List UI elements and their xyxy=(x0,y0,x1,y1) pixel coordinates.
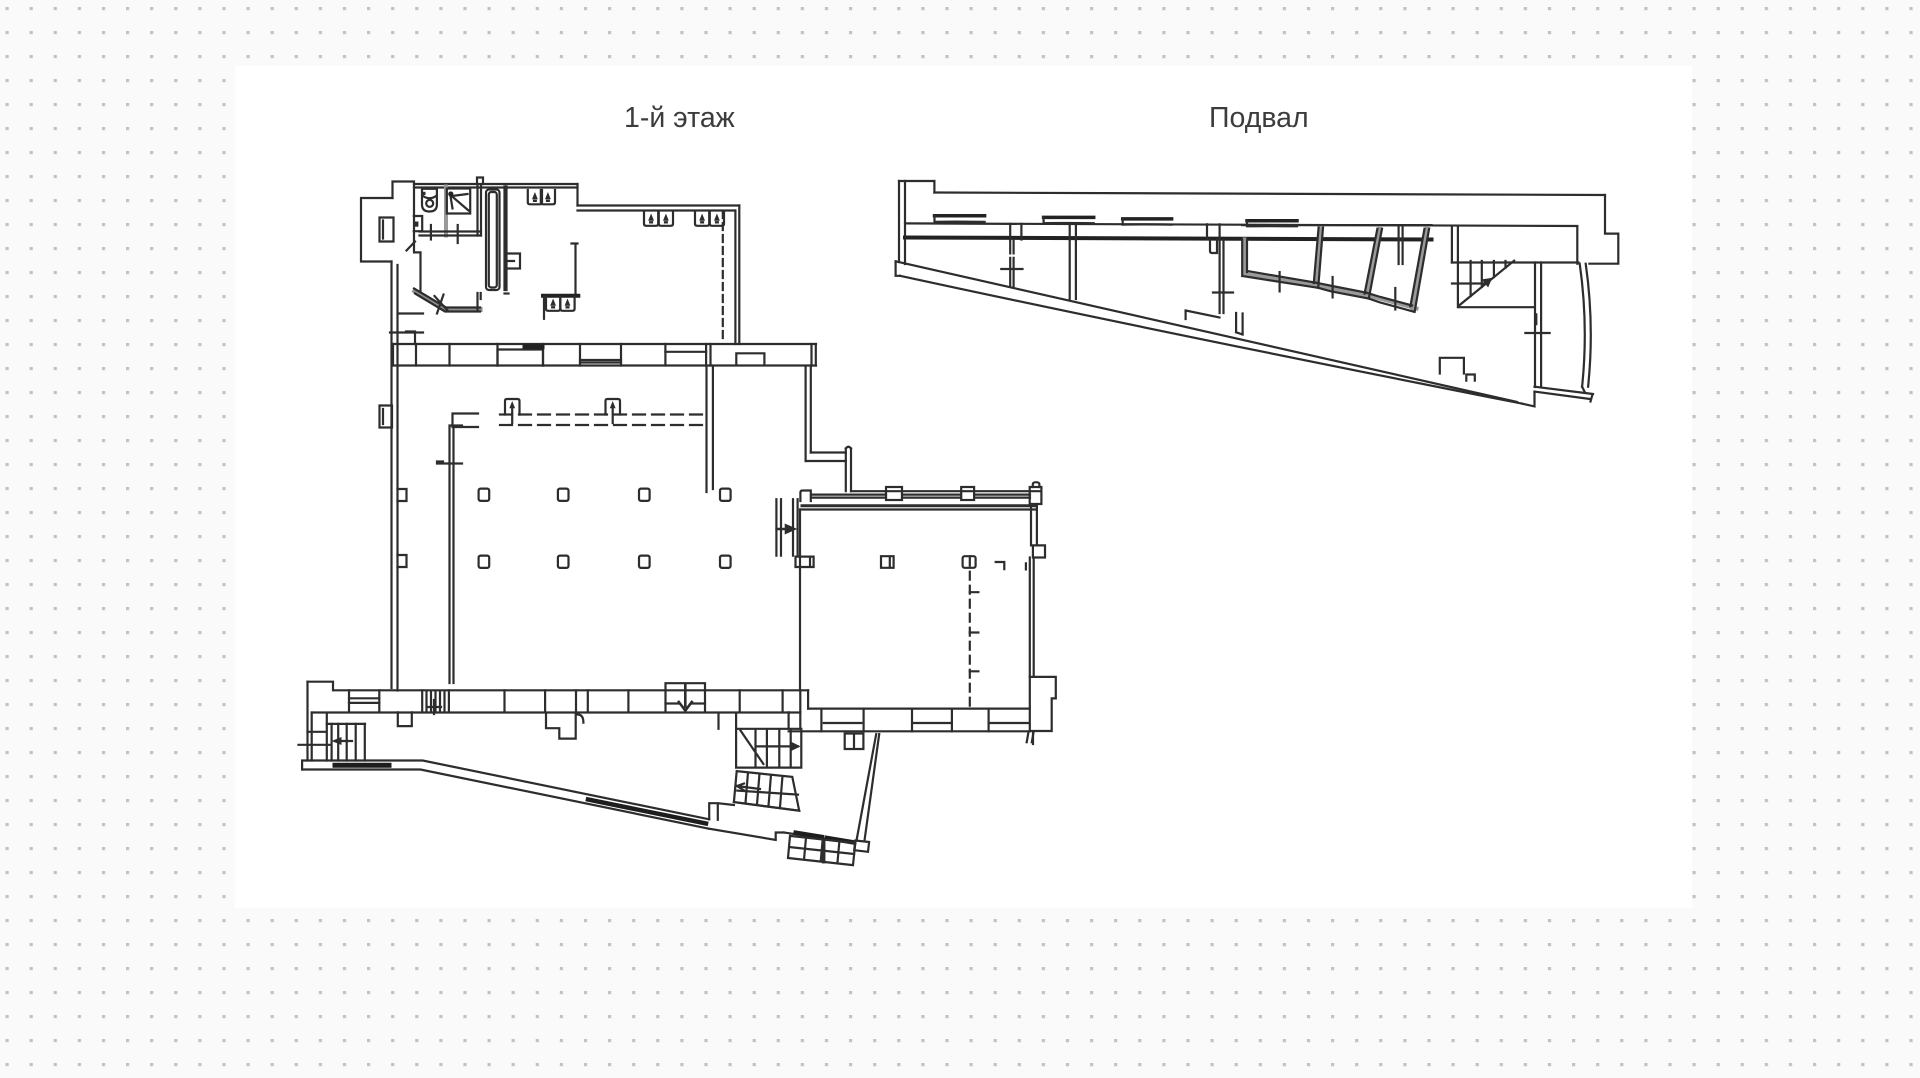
svg-text:1-й этаж: 1-й этаж xyxy=(624,102,735,134)
svg-text:Подвал: Подвал xyxy=(1209,102,1309,134)
